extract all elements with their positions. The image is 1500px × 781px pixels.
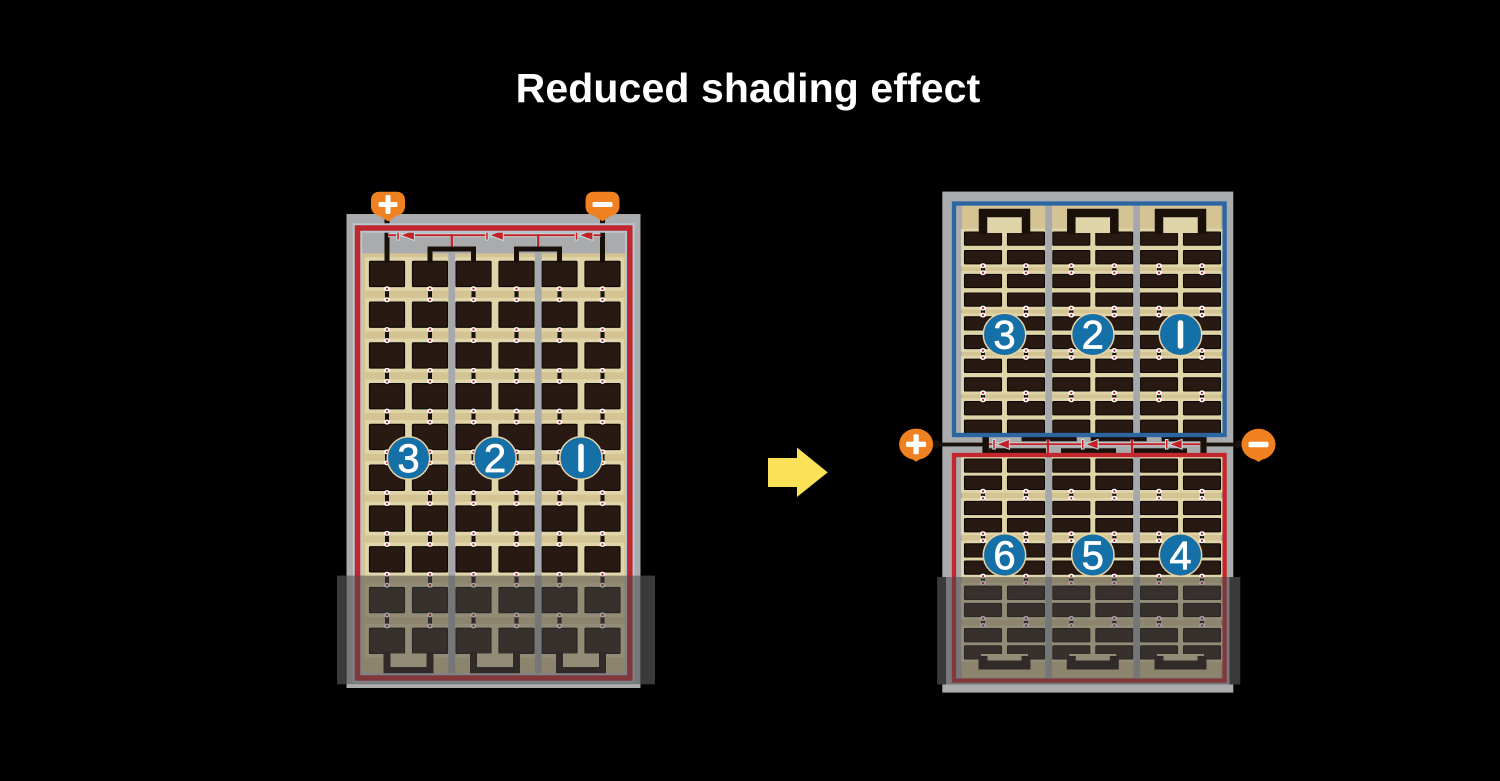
svg-text:2: 2 bbox=[1082, 314, 1104, 358]
svg-text:5: 5 bbox=[1082, 534, 1104, 578]
svg-text:3: 3 bbox=[993, 314, 1015, 358]
svg-text:2: 2 bbox=[484, 437, 506, 481]
svg-text:4: 4 bbox=[1169, 534, 1191, 578]
svg-text:3: 3 bbox=[397, 437, 419, 481]
svg-text:6: 6 bbox=[993, 534, 1015, 578]
